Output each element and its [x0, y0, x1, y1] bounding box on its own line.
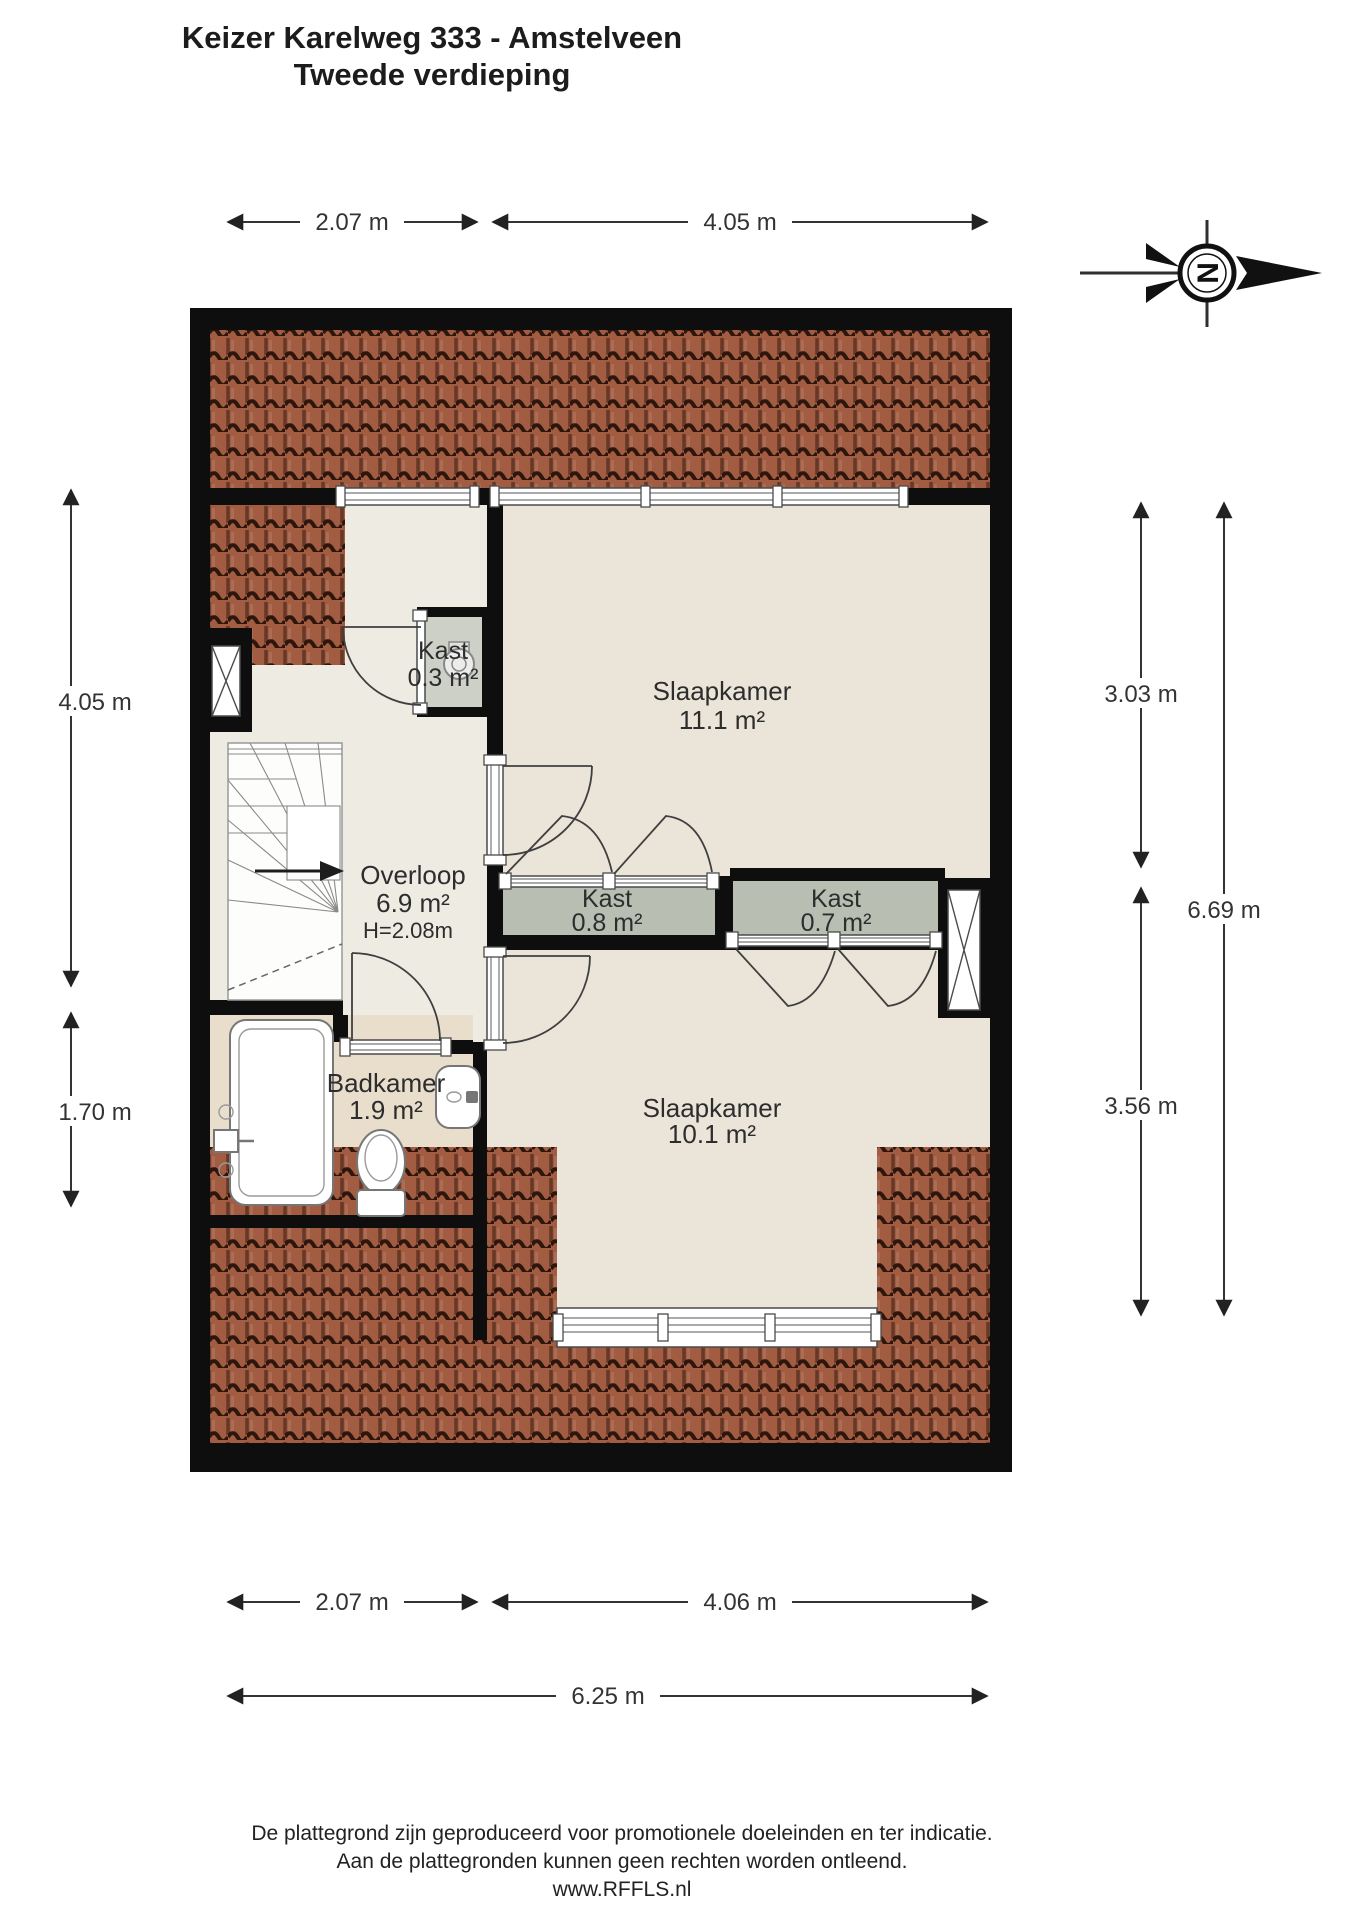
- bedroom-1-name: Slaapkamer: [653, 676, 792, 706]
- kast-03-area: 0.3 m²: [408, 664, 479, 692]
- stairs: [228, 743, 344, 1000]
- dim-right-1: 3.03 m: [1104, 681, 1177, 708]
- dim-bottom-1: 2.07 m: [315, 1589, 388, 1616]
- footer-line-1: De plattegrond zijn geproduceerd voor pr…: [251, 1822, 992, 1845]
- bathroom-area: 1.9 m²: [349, 1095, 423, 1125]
- footer-website: www.RFFLS.nl: [552, 1878, 692, 1901]
- floorplan-page: Keizer Karelweg 333 - Amstelveen Tweede …: [0, 0, 1358, 1920]
- window-top-bedroom-1: [490, 486, 908, 507]
- page-title: Keizer Karelweg 333 - Amstelveen Tweede …: [182, 20, 682, 92]
- kast-07-area: 0.7 m²: [801, 909, 872, 937]
- title-line-1: Keizer Karelweg 333 - Amstelveen: [182, 20, 682, 55]
- window-left-x: [212, 646, 240, 716]
- dim-bottom-2: 4.06 m: [703, 1589, 776, 1616]
- window-right-x: [948, 890, 980, 1010]
- title-line-2: Tweede verdieping: [294, 57, 571, 92]
- roof-dormer-right: [877, 1147, 990, 1340]
- toilet: [357, 1130, 405, 1216]
- dim-top-2: 4.05 m: [703, 209, 776, 236]
- dim-right-2: 3.56 m: [1104, 1093, 1177, 1120]
- roof-top-band: [210, 330, 990, 490]
- door-opening-bathroom: [340, 1038, 451, 1056]
- footer-line-2: Aan de plattegronden kunnen geen rechten…: [337, 1850, 908, 1873]
- wall-bathroom-top: [190, 1000, 343, 1015]
- roof-dormer-left: [487, 1147, 557, 1340]
- bathroom-name: Badkamer: [327, 1068, 446, 1098]
- overloop-area: 6.9 m²: [376, 888, 450, 918]
- door-opening-bedroom-1: [484, 755, 506, 865]
- compass-north-arrow: [1236, 256, 1322, 290]
- dim-left-2: 1.70 m: [58, 1099, 131, 1126]
- dim-bottom-3: 6.25 m: [571, 1683, 644, 1710]
- window-dormer-bottom: [553, 1308, 881, 1347]
- compass-letter: N: [1191, 262, 1224, 284]
- footer-disclaimer: De plattegrond zijn geproduceerd voor pr…: [251, 1822, 992, 1901]
- overloop-height: H=2.08m: [363, 918, 453, 943]
- dim-left-1: 4.05 m: [58, 689, 131, 716]
- window-top-overloop: [336, 486, 479, 507]
- dim-right-3: 6.69 m: [1187, 897, 1260, 924]
- kast-03-name: Kast: [418, 637, 468, 665]
- wall-kast-08-bottom: [503, 935, 730, 950]
- kast-08-area: 0.8 m²: [572, 909, 643, 937]
- dim-top-1: 2.07 m: [315, 209, 388, 236]
- bedroom-2-area: 10.1 m²: [668, 1119, 756, 1149]
- compass-icon: N: [1080, 220, 1322, 327]
- floor-plan: Kast 0.3 m² Slaapkamer 11.1 m² Overloop …: [190, 308, 1012, 1472]
- bedroom-1-area: 11.1 m²: [679, 705, 766, 735]
- overloop-name: Overloop: [360, 860, 466, 890]
- bathtub: [214, 1020, 333, 1205]
- roof-bottom-band: [210, 1340, 990, 1443]
- wall-bathroom-bottom: [190, 1215, 473, 1228]
- door-opening-bedroom-2: [484, 947, 506, 1050]
- wall-kast-07-top: [730, 868, 945, 881]
